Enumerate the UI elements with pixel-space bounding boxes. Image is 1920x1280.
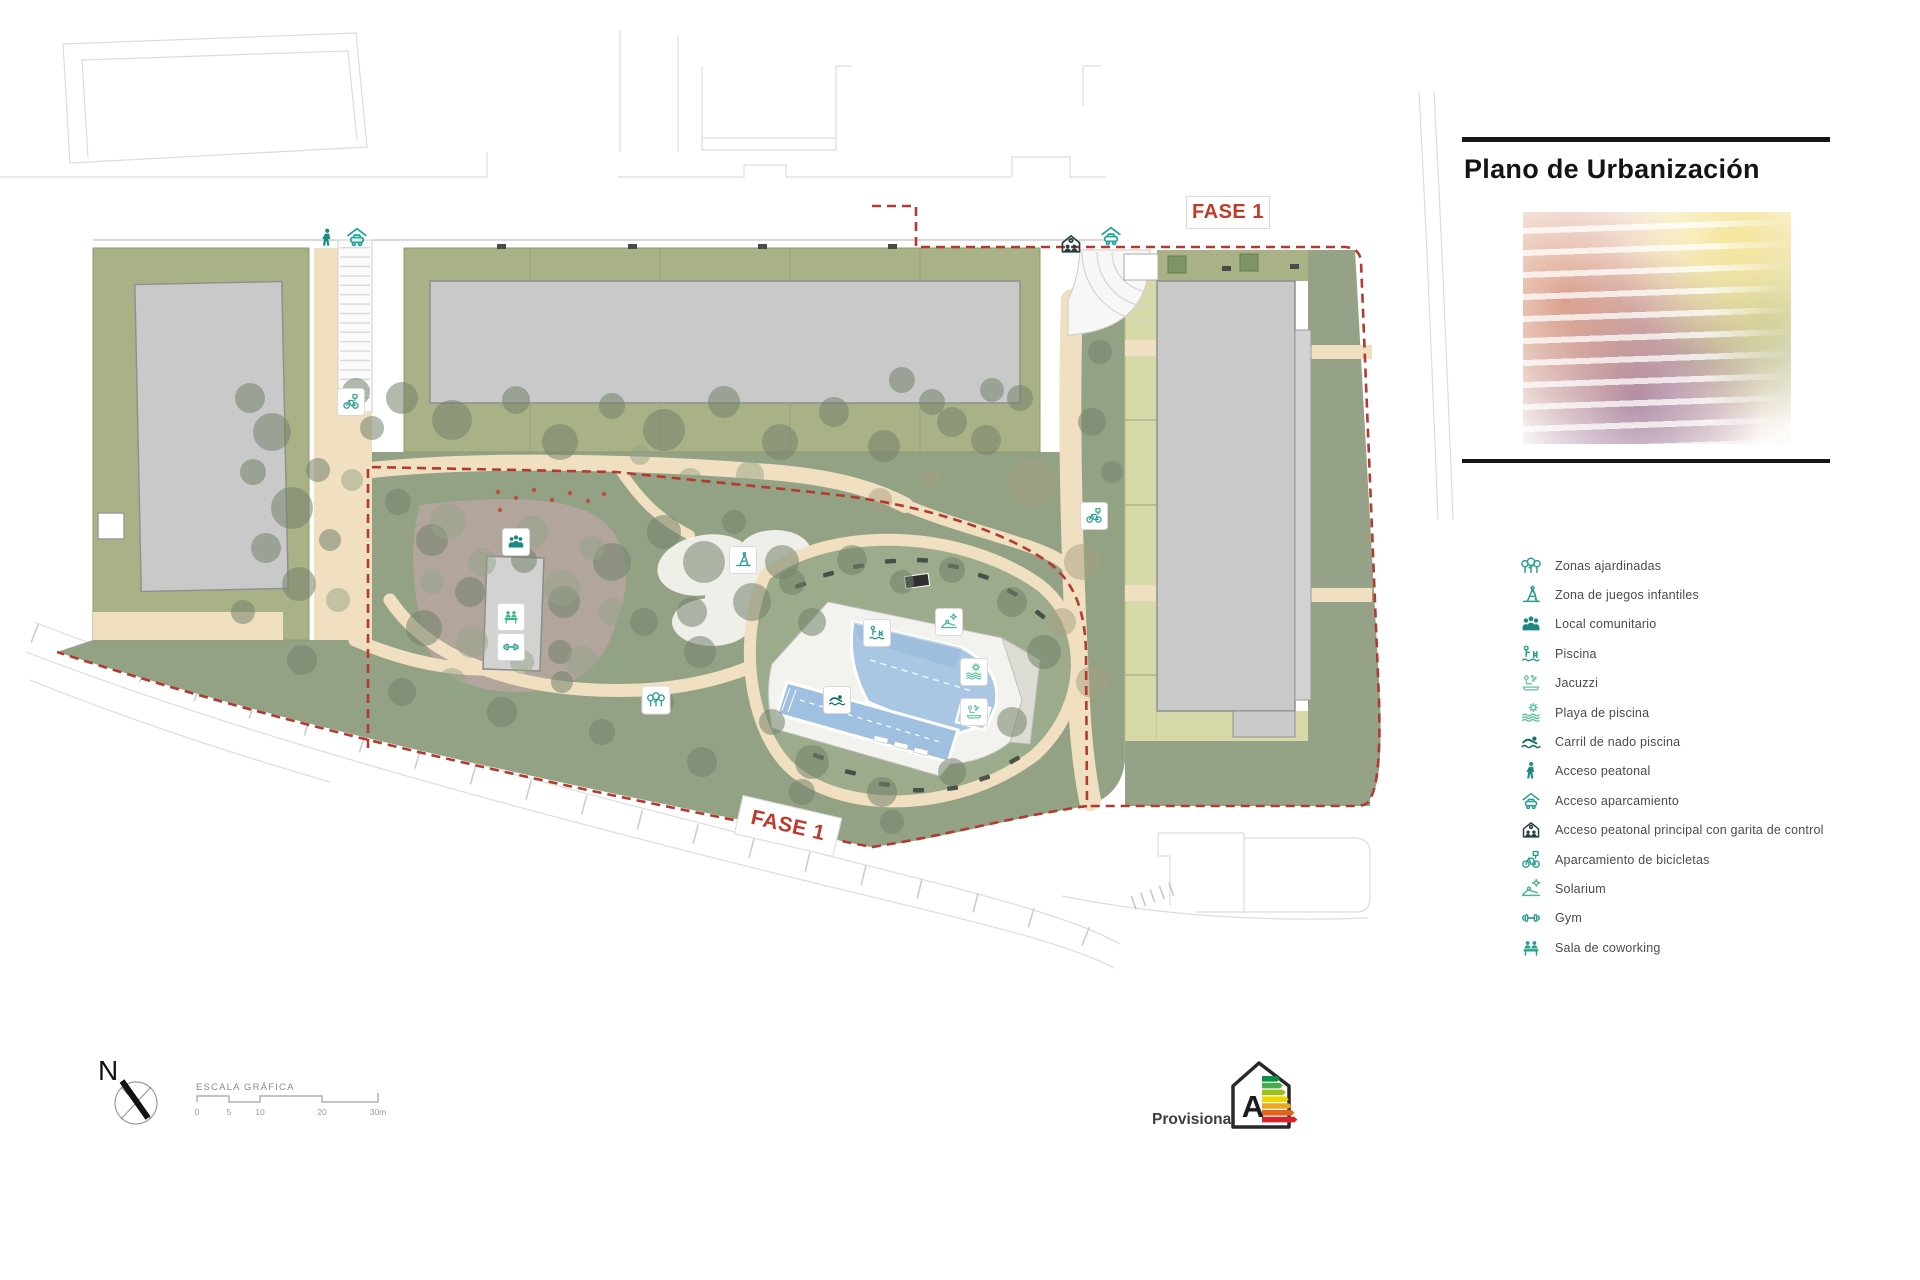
page-title: Plano de Urbanización	[1464, 154, 1760, 185]
legend-item-label: Playa de piscina	[1555, 706, 1649, 720]
jacuzzi-icon	[1520, 672, 1542, 694]
scale-tick: 0	[195, 1107, 200, 1117]
legend-item-label: Aparcamiento de bicicletas	[1555, 853, 1710, 867]
site-plan-page: { "title": "Plano de Urbanización", "pha…	[0, 0, 1920, 1280]
legend-icon-use	[1523, 676, 1539, 690]
legend-item: Zonas ajardinadas	[1520, 551, 1824, 580]
scale-tick: 30m	[370, 1107, 387, 1117]
legend-item: Zona de juegos infantiles	[1520, 580, 1824, 609]
scale-bar-label: ESCALA GRÁFICA	[196, 1082, 295, 1093]
energy-bar	[1262, 1110, 1295, 1116]
legend-item-label: Piscina	[1555, 647, 1597, 661]
playground-icon	[730, 547, 757, 574]
legend-icon-use	[1523, 851, 1539, 867]
pedestrian-icon	[1520, 760, 1542, 782]
phase-label-top: FASE 1	[1186, 196, 1270, 229]
legend-item: Local comunitario	[1520, 610, 1824, 639]
legend-item-label: Acceso peatonal principal con garita de …	[1555, 823, 1824, 837]
building-east	[1157, 281, 1295, 711]
right-block-band-east	[1308, 250, 1381, 806]
legend-icon-use	[1523, 941, 1538, 955]
legend-item: Playa de piscina	[1520, 698, 1824, 727]
legend-item: Acceso aparcamiento	[1520, 786, 1824, 815]
energy-bar	[1262, 1117, 1297, 1123]
trees-icon	[1520, 555, 1542, 577]
bicycle-icon	[1081, 503, 1108, 530]
legend-item-label: Zona de juegos infantiles	[1555, 588, 1699, 602]
compass: N	[98, 1055, 157, 1124]
legend-icon-use	[1522, 737, 1540, 748]
steps-hatch	[1133, 886, 1180, 903]
energy-provisional-label: Provisional	[1152, 1111, 1236, 1128]
car-roof-icon	[1102, 228, 1120, 245]
north-arrow	[122, 1081, 148, 1118]
title-rule-bottom	[1462, 459, 1830, 463]
render-image	[1523, 212, 1791, 444]
bicycle-icon	[338, 389, 365, 416]
piscina-icon	[864, 620, 891, 647]
scale-bar-line	[197, 1093, 378, 1102]
people-icon	[503, 529, 530, 556]
legend-item: Carril de nado piscina	[1520, 727, 1824, 756]
energy-bar	[1262, 1076, 1280, 1082]
trees-icon	[642, 686, 670, 714]
sun-waves-icon	[961, 659, 988, 686]
piscina-icon	[1520, 643, 1542, 665]
swimmer-icon	[824, 687, 851, 714]
north-label: N	[98, 1055, 118, 1086]
sun-waves-icon	[1520, 702, 1542, 724]
title-rule-top	[1462, 137, 1830, 142]
scale-tick: 20	[317, 1107, 327, 1117]
coworking-icon	[498, 604, 525, 631]
legend-icon-use	[1523, 617, 1540, 631]
garita-icon	[1520, 819, 1542, 841]
energy-bar	[1262, 1090, 1286, 1096]
bicycle-icon	[1520, 849, 1542, 871]
solarium-icon	[1520, 878, 1542, 900]
gym-icon	[498, 634, 525, 661]
playground-icon	[1520, 584, 1542, 606]
people-icon	[1520, 613, 1542, 635]
energy-bar	[1262, 1096, 1289, 1102]
energy-bars	[1262, 1076, 1297, 1122]
legend-item-label: Sala de coworking	[1555, 941, 1661, 955]
legend-item-label: Acceso peatonal	[1555, 764, 1650, 778]
legend-item: Solarium	[1520, 874, 1824, 903]
building-east-wing	[1295, 330, 1311, 700]
legend-item-label: Carril de nado piscina	[1555, 735, 1680, 749]
legend-item-label: Jacuzzi	[1555, 676, 1598, 690]
energy-bar	[1262, 1083, 1283, 1089]
energy-certificate: Provisional A	[1152, 1063, 1297, 1128]
legend-item: Acceso peatonal principal con garita de …	[1520, 816, 1824, 845]
legend-item-label: Solarium	[1555, 882, 1606, 896]
legend-icon-use	[1526, 762, 1534, 778]
solarium-icon	[936, 609, 963, 636]
legend-item-label: Gym	[1555, 911, 1582, 925]
scale-tick: 5	[227, 1107, 232, 1117]
legend-item-label: Zonas ajardinadas	[1555, 559, 1661, 573]
legend-icon-use	[1523, 646, 1539, 660]
legend-icon-use	[1523, 793, 1539, 808]
legend-icon-use	[1523, 703, 1539, 721]
legend-item: Aparcamiento de bicicletas	[1520, 845, 1824, 874]
gym-icon	[1520, 907, 1542, 929]
swimmer-icon	[1520, 731, 1542, 753]
legend-item: Piscina	[1520, 639, 1824, 668]
legend-icon-use	[1524, 587, 1540, 602]
legend-item-label: Local comunitario	[1555, 617, 1656, 631]
scale-tick: 10	[255, 1107, 265, 1117]
coworking-icon	[1520, 937, 1542, 959]
legend-item: Gym	[1520, 904, 1824, 933]
legend-item: Jacuzzi	[1520, 669, 1824, 698]
legend: Zonas ajardinadas Zona de juegos infanti…	[1520, 551, 1824, 962]
energy-bar	[1262, 1103, 1292, 1109]
legend-item-label: Acceso aparcamiento	[1555, 794, 1679, 808]
legend-icon-use	[1523, 880, 1540, 896]
garita-icon	[1062, 236, 1079, 252]
legend-icon-use	[1523, 915, 1539, 921]
legend-item: Sala de coworking	[1520, 933, 1824, 962]
energy-grade: A	[1242, 1089, 1264, 1124]
jacuzzi-icon	[961, 699, 988, 726]
legend-icon-use	[1522, 558, 1540, 572]
pedestrian-icon	[322, 229, 330, 246]
scale-bar: ESCALA GRÁFICA 0 5 10 20 30m	[195, 1082, 387, 1117]
car-roof-icon	[1520, 790, 1542, 812]
legend-item: Acceso peatonal	[1520, 757, 1824, 786]
legend-icon-use	[1523, 823, 1538, 837]
building-north	[430, 281, 1020, 403]
